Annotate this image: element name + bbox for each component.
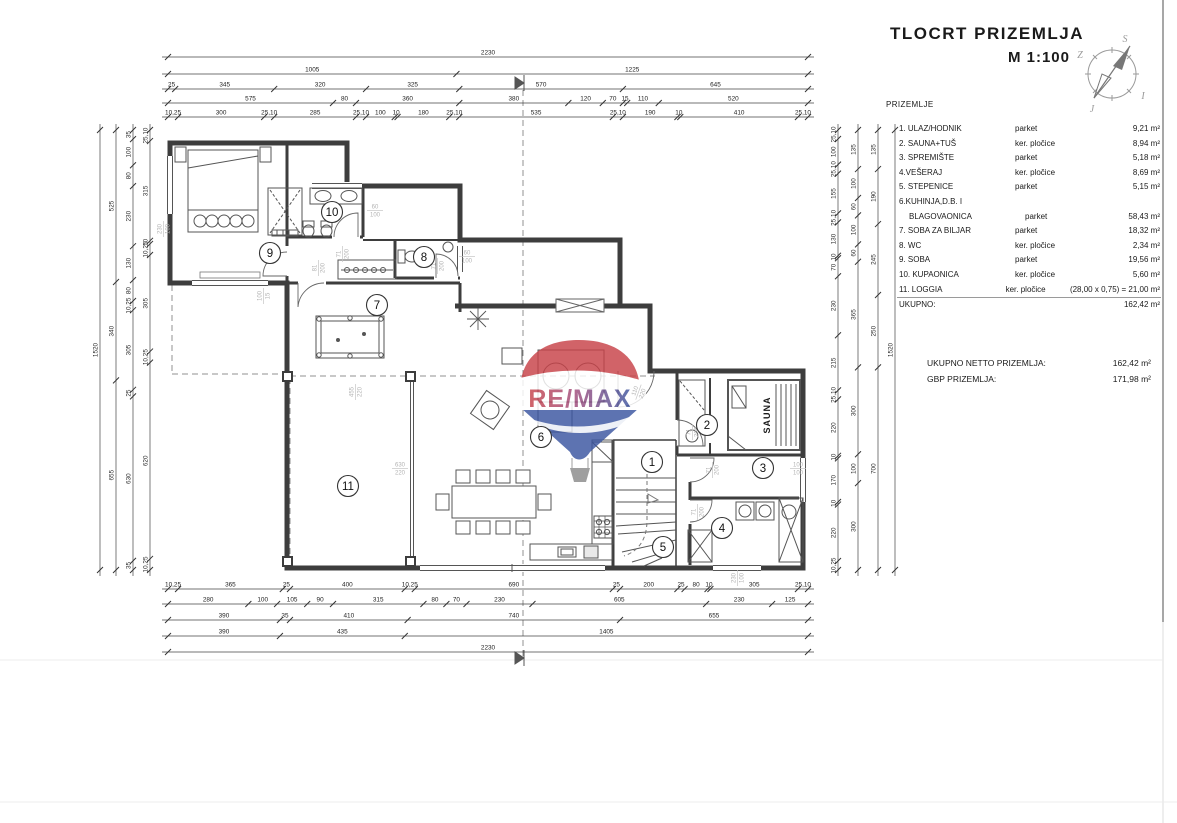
svg-text:100: 100 bbox=[257, 597, 268, 604]
svg-text:60: 60 bbox=[851, 203, 858, 211]
svg-text:120: 120 bbox=[580, 96, 591, 103]
svg-text:365: 365 bbox=[851, 309, 858, 320]
dim-chain: 3904351405 bbox=[162, 629, 814, 640]
svg-text:25: 25 bbox=[677, 582, 685, 589]
table-row: 1. ULAZ/HODNIKparket9,21 m² bbox=[899, 122, 1160, 137]
svg-text:10,25: 10,25 bbox=[143, 241, 150, 257]
svg-text:300: 300 bbox=[216, 110, 227, 117]
room-name: 1. ULAZ/HODNIK bbox=[899, 122, 1015, 137]
compass-south: J bbox=[1090, 104, 1095, 115]
svg-text:70: 70 bbox=[453, 597, 461, 604]
svg-text:345: 345 bbox=[219, 82, 230, 89]
glass-wall bbox=[411, 378, 414, 562]
table-row: 4.VEŠERAJker. pločice8,69 m² bbox=[899, 166, 1160, 181]
room-name: 2. SAUNA+TUŠ bbox=[899, 137, 1015, 152]
section-label: PRIZEMLJE bbox=[886, 100, 934, 109]
dim-chain: 135190245250700 bbox=[871, 124, 882, 576]
svg-text:80: 80 bbox=[341, 96, 349, 103]
svg-text:35: 35 bbox=[281, 613, 289, 620]
svg-text:80: 80 bbox=[126, 287, 133, 295]
svg-text:90: 90 bbox=[317, 597, 325, 604]
svg-text:435: 435 bbox=[337, 629, 348, 636]
dim-chain: 575803603801207015110520 bbox=[162, 96, 814, 107]
bed bbox=[175, 147, 271, 232]
svg-text:135: 135 bbox=[851, 144, 858, 155]
svg-text:25: 25 bbox=[283, 582, 291, 589]
svg-text:200: 200 bbox=[440, 260, 446, 271]
svg-text:380: 380 bbox=[508, 96, 519, 103]
svg-text:35: 35 bbox=[126, 561, 133, 569]
bathroom-fixtures bbox=[268, 188, 362, 237]
svg-text:305: 305 bbox=[126, 344, 133, 355]
dim-chain: 25345320325570645 bbox=[162, 82, 814, 93]
svg-text:655: 655 bbox=[709, 613, 720, 620]
svg-text:280: 280 bbox=[203, 597, 214, 604]
table-row: 6.KUHINJA,D.B. I bbox=[899, 195, 1160, 210]
table-row: 7. SOBA ZA BILJARparket18,32 m² bbox=[899, 224, 1160, 239]
svg-text:25: 25 bbox=[613, 582, 621, 589]
room-marker-3: 3 bbox=[753, 458, 774, 479]
room-area: 19,56 m² bbox=[1085, 253, 1160, 268]
svg-text:100: 100 bbox=[166, 223, 172, 234]
svg-text:100: 100 bbox=[851, 178, 858, 189]
balloon-basket bbox=[570, 468, 590, 482]
svg-text:1005: 1005 bbox=[305, 67, 320, 74]
svg-text:10: 10 bbox=[393, 110, 401, 117]
room-area: 5,60 m² bbox=[1085, 268, 1160, 283]
room-marker-9: 9 bbox=[260, 243, 281, 264]
svg-text:130: 130 bbox=[126, 257, 133, 268]
dim-chain: 10,253652540010,256902520025801030525,10 bbox=[162, 582, 814, 593]
svg-text:100: 100 bbox=[793, 471, 804, 477]
svg-text:5: 5 bbox=[660, 542, 666, 554]
svg-text:71: 71 bbox=[337, 250, 343, 257]
room-area: 2,34 m² bbox=[1085, 239, 1160, 254]
svg-text:25,10: 25,10 bbox=[446, 110, 462, 117]
svg-text:100: 100 bbox=[851, 463, 858, 474]
gbp-row: GBP PRIZEMLJA: 171,98 m² bbox=[927, 374, 1151, 384]
svg-text:315: 315 bbox=[373, 597, 384, 604]
svg-text:80: 80 bbox=[693, 582, 701, 589]
dim-chain: 280100105903158070230605230125 bbox=[162, 597, 814, 608]
room-area: 18,32 m² bbox=[1085, 224, 1160, 239]
svg-text:10,25: 10,25 bbox=[126, 297, 133, 313]
room-material bbox=[1015, 195, 1085, 210]
drawing-title: TLOCRT PRIZEMLJA bbox=[890, 24, 1070, 44]
dim-chain: 25,103151010,2530510,2562010,25 bbox=[143, 124, 154, 576]
svg-text:10: 10 bbox=[326, 207, 339, 219]
dim-chain: 39035410740655 bbox=[162, 613, 814, 624]
svg-text:305: 305 bbox=[749, 582, 760, 589]
room-marker-8: 8 bbox=[414, 247, 435, 268]
svg-text:410: 410 bbox=[734, 110, 745, 117]
svg-text:200: 200 bbox=[643, 582, 654, 589]
room-area: 5,18 m² bbox=[1085, 151, 1160, 166]
svg-text:525: 525 bbox=[109, 200, 116, 211]
dim-chain: 25,1010025,1015525,10130107023021525,102… bbox=[831, 124, 842, 576]
room-marker-11: 11 bbox=[338, 476, 359, 497]
opening-label: 455220 bbox=[350, 384, 364, 400]
svg-text:10,25: 10,25 bbox=[143, 349, 150, 365]
svg-text:630: 630 bbox=[126, 473, 133, 484]
svg-text:71: 71 bbox=[707, 466, 713, 473]
opening-label: 230100 bbox=[732, 570, 746, 586]
svg-text:390: 390 bbox=[219, 629, 230, 636]
svg-text:25,10: 25,10 bbox=[795, 582, 811, 589]
room-marker-6: 6 bbox=[531, 427, 552, 448]
svg-text:25,10: 25,10 bbox=[353, 110, 369, 117]
svg-text:71: 71 bbox=[692, 508, 698, 515]
svg-text:100: 100 bbox=[375, 110, 386, 117]
svg-text:575: 575 bbox=[245, 96, 256, 103]
svg-text:410: 410 bbox=[343, 613, 354, 620]
room-material: parket bbox=[1015, 122, 1085, 137]
svg-text:190: 190 bbox=[871, 191, 878, 202]
table-rule bbox=[897, 297, 1161, 298]
svg-text:1520: 1520 bbox=[93, 342, 100, 357]
svg-text:81: 81 bbox=[313, 264, 319, 271]
svg-text:8: 8 bbox=[421, 252, 427, 264]
svg-text:100: 100 bbox=[831, 146, 838, 157]
billiard-table bbox=[316, 316, 384, 358]
remax-watermark: RE/MAX bbox=[514, 340, 646, 482]
svg-text:60: 60 bbox=[464, 251, 471, 257]
svg-text:535: 535 bbox=[531, 110, 542, 117]
room-material: parket bbox=[1015, 224, 1085, 239]
svg-text:155: 155 bbox=[831, 188, 838, 199]
opening-label: 81200 bbox=[313, 260, 327, 276]
room-material: parket bbox=[1015, 180, 1085, 195]
room-material: parket bbox=[1015, 151, 1085, 166]
svg-text:390: 390 bbox=[219, 613, 230, 620]
room-area: 8,69 m² bbox=[1085, 166, 1160, 181]
total-row: UKUPNO: 162,42 m² bbox=[899, 300, 1160, 309]
svg-text:100: 100 bbox=[740, 572, 746, 583]
svg-text:80: 80 bbox=[126, 172, 133, 180]
svg-text:220: 220 bbox=[831, 422, 838, 433]
svg-text:100: 100 bbox=[851, 224, 858, 235]
svg-text:130: 130 bbox=[831, 233, 838, 244]
svg-text:630: 630 bbox=[395, 463, 406, 469]
total-label: UKUPNO: bbox=[899, 300, 1015, 309]
svg-text:340: 340 bbox=[109, 325, 116, 336]
dim-chain: 10051225 bbox=[162, 67, 814, 78]
net-total-row: UKUPNO NETTO PRIZEMLJA: 162,42 m² bbox=[927, 358, 1151, 368]
compass-west: Z bbox=[1077, 50, 1083, 61]
room-name: 6.KUHINJA,D.B. I bbox=[899, 195, 1015, 210]
opening-label: 10015 bbox=[258, 288, 272, 304]
svg-text:2: 2 bbox=[704, 420, 710, 432]
gbp-label: GBP PRIZEMLJA: bbox=[927, 374, 996, 384]
svg-text:25,10: 25,10 bbox=[261, 110, 277, 117]
svg-text:1405: 1405 bbox=[599, 629, 614, 636]
svg-text:605: 605 bbox=[614, 597, 625, 604]
room-marker-4: 4 bbox=[712, 518, 733, 539]
room-schedule-table: 1. ULAZ/HODNIKparket9,21 m²2. SAUNA+TUŠk… bbox=[899, 122, 1160, 297]
room-area: 58,43 m² bbox=[1095, 210, 1160, 225]
svg-text:245: 245 bbox=[871, 254, 878, 265]
room-marker-5: 5 bbox=[653, 537, 674, 558]
svg-text:7: 7 bbox=[374, 300, 380, 312]
table-row: 8. WCker. pločice2,34 m² bbox=[899, 239, 1160, 254]
svg-text:645: 645 bbox=[710, 82, 721, 89]
svg-text:200: 200 bbox=[715, 464, 721, 475]
svg-text:9: 9 bbox=[267, 248, 273, 260]
svg-text:100: 100 bbox=[462, 259, 473, 265]
svg-text:200: 200 bbox=[321, 262, 327, 273]
total-value: 162,42 m² bbox=[1085, 300, 1160, 309]
room-name: 7. SOBA ZA BILJAR bbox=[899, 224, 1015, 239]
svg-text:570: 570 bbox=[536, 82, 547, 89]
table-row: 5. STEPENICEparket5,15 m² bbox=[899, 180, 1160, 195]
svg-text:740: 740 bbox=[508, 613, 519, 620]
svg-text:2230: 2230 bbox=[481, 645, 496, 652]
svg-text:15: 15 bbox=[621, 96, 629, 103]
svg-text:1520: 1520 bbox=[888, 342, 895, 357]
svg-text:6: 6 bbox=[538, 432, 544, 444]
svg-text:10: 10 bbox=[705, 582, 713, 589]
svg-text:10,25: 10,25 bbox=[402, 582, 418, 589]
room-name: 11. LOGGIA bbox=[899, 283, 1006, 298]
svg-text:3: 3 bbox=[760, 463, 766, 475]
svg-text:15: 15 bbox=[266, 292, 272, 299]
opening-label: 60100 bbox=[367, 205, 383, 219]
dim-chain: 2230 bbox=[162, 50, 814, 61]
opening-label: 71200 bbox=[692, 504, 706, 520]
svg-text:80: 80 bbox=[431, 597, 439, 604]
drawing-sheet: SAUNA RE/MAX 223010051225253453203255706… bbox=[0, 0, 1177, 823]
room-material: ker. pločice bbox=[1015, 166, 1085, 181]
dim-chain: 2230 bbox=[162, 645, 814, 656]
svg-text:320: 320 bbox=[315, 82, 326, 89]
svg-text:25,10: 25,10 bbox=[831, 386, 838, 402]
svg-text:360: 360 bbox=[402, 96, 413, 103]
room-material: ker. pločice bbox=[1015, 239, 1085, 254]
svg-text:70: 70 bbox=[831, 263, 838, 271]
table-row: 3. SPREMIŠTEparket5,18 m² bbox=[899, 151, 1160, 166]
svg-text:70: 70 bbox=[609, 96, 617, 103]
svg-text:11: 11 bbox=[342, 481, 354, 493]
sauna-label: SAUNA bbox=[762, 396, 772, 433]
table-row: BLAGOVAONICAparket58,43 m² bbox=[899, 210, 1160, 225]
dim-chain: 10,2530025,1028525,101001018025,1053525,… bbox=[162, 110, 814, 121]
svg-text:170: 170 bbox=[831, 474, 838, 485]
compass-rose: S Z I J bbox=[1077, 34, 1145, 115]
svg-text:25,10: 25,10 bbox=[831, 161, 838, 177]
svg-text:220: 220 bbox=[358, 386, 364, 397]
room-area bbox=[1085, 195, 1160, 210]
svg-text:105: 105 bbox=[287, 597, 298, 604]
compass-north: S bbox=[1123, 34, 1128, 45]
table-row: 11. LOGGIAker. pločice(28,00 x 0,75) = 2… bbox=[899, 283, 1160, 298]
svg-text:300: 300 bbox=[851, 405, 858, 416]
room-name: 5. STEPENICE bbox=[899, 180, 1015, 195]
svg-text:365: 365 bbox=[225, 582, 236, 589]
dim-chain: 1520 bbox=[888, 124, 899, 576]
svg-text:220: 220 bbox=[395, 471, 406, 477]
svg-text:25,10: 25,10 bbox=[143, 127, 150, 143]
svg-text:25,10: 25,10 bbox=[795, 110, 811, 117]
svg-text:180: 180 bbox=[418, 110, 429, 117]
svg-text:135: 135 bbox=[871, 144, 878, 155]
room-marker-2: 2 bbox=[697, 415, 718, 436]
dining-set bbox=[436, 470, 551, 534]
svg-text:190: 190 bbox=[645, 110, 656, 117]
svg-text:110: 110 bbox=[638, 96, 649, 103]
svg-text:520: 520 bbox=[728, 96, 739, 103]
svg-text:655: 655 bbox=[109, 469, 116, 480]
room-material: ker. pločice bbox=[1015, 137, 1085, 152]
svg-text:100: 100 bbox=[370, 213, 381, 219]
svg-text:25,10: 25,10 bbox=[831, 209, 838, 225]
room-material: ker. pločice bbox=[1015, 268, 1085, 283]
room-marker-1: 1 bbox=[642, 452, 663, 473]
columns bbox=[283, 372, 415, 566]
svg-text:25: 25 bbox=[168, 82, 176, 89]
svg-text:200: 200 bbox=[345, 248, 351, 259]
svg-text:1: 1 bbox=[649, 457, 655, 469]
room-name: 8. WC bbox=[899, 239, 1015, 254]
svg-text:25,10: 25,10 bbox=[610, 110, 626, 117]
drawing-scale: M 1:100 bbox=[955, 49, 1070, 66]
dim-chain: 525340655 bbox=[109, 124, 120, 576]
net-total-value: 162,42 m² bbox=[1113, 358, 1151, 368]
svg-text:60: 60 bbox=[851, 249, 858, 257]
svg-text:60: 60 bbox=[372, 205, 379, 211]
room-area: (28,00 x 0,75) = 21,00 m² bbox=[1070, 283, 1160, 298]
table-row: 9. SOBAparket19,56 m² bbox=[899, 253, 1160, 268]
svg-text:25: 25 bbox=[126, 389, 133, 397]
compass-east: I bbox=[1140, 91, 1145, 102]
svg-text:71: 71 bbox=[687, 428, 693, 435]
svg-text:315: 315 bbox=[143, 185, 150, 196]
svg-text:10,25: 10,25 bbox=[143, 556, 150, 572]
svg-text:230: 230 bbox=[126, 210, 133, 221]
svg-text:10: 10 bbox=[675, 110, 683, 117]
svg-text:250: 250 bbox=[871, 325, 878, 336]
svg-text:285: 285 bbox=[310, 110, 321, 117]
opening-label: 630220 bbox=[392, 463, 408, 477]
table-row: 10. KUPAONICAker. pločice5,60 m² bbox=[899, 268, 1160, 283]
svg-text:125: 125 bbox=[785, 597, 796, 604]
room-area: 9,21 m² bbox=[1085, 122, 1160, 137]
svg-text:100: 100 bbox=[793, 463, 804, 469]
svg-text:300: 300 bbox=[851, 521, 858, 532]
svg-text:325: 325 bbox=[407, 82, 418, 89]
table-row: 2. SAUNA+TUŠker. pločice8,94 m² bbox=[899, 137, 1160, 152]
svg-text:230: 230 bbox=[158, 223, 164, 234]
svg-text:25,10: 25,10 bbox=[831, 126, 838, 142]
svg-text:10,25: 10,25 bbox=[831, 557, 838, 573]
svg-text:230: 230 bbox=[732, 572, 738, 583]
room-area: 8,94 m² bbox=[1085, 137, 1160, 152]
svg-text:1225: 1225 bbox=[625, 67, 640, 74]
room-name: BLAGOVAONICA bbox=[899, 210, 1025, 225]
svg-text:220: 220 bbox=[831, 527, 838, 538]
svg-text:35: 35 bbox=[126, 131, 133, 139]
svg-text:100: 100 bbox=[258, 290, 264, 301]
dim-chain: 1351006010060365300100300 bbox=[851, 124, 862, 576]
svg-text:200: 200 bbox=[700, 506, 706, 517]
sauna-room bbox=[679, 380, 800, 450]
remax-text: RE/MAX bbox=[528, 385, 631, 413]
svg-text:700: 700 bbox=[871, 463, 878, 474]
svg-text:10: 10 bbox=[831, 253, 838, 261]
room-material: parket bbox=[1025, 210, 1095, 225]
svg-text:690: 690 bbox=[508, 582, 519, 589]
svg-text:100: 100 bbox=[126, 146, 133, 157]
net-total-label: UKUPNO NETTO PRIZEMLJA: bbox=[927, 358, 1046, 368]
svg-text:230: 230 bbox=[734, 597, 745, 604]
gbp-value: 171,98 m² bbox=[1113, 374, 1151, 384]
svg-text:10,25: 10,25 bbox=[165, 110, 181, 117]
dim-chain: 1520 bbox=[93, 124, 104, 576]
room-name: 4.VEŠERAJ bbox=[899, 166, 1015, 181]
room-material: parket bbox=[1015, 253, 1085, 268]
svg-text:10: 10 bbox=[831, 499, 838, 507]
svg-text:4: 4 bbox=[719, 523, 726, 535]
svg-text:10: 10 bbox=[831, 453, 838, 461]
room-name: 10. KUPAONICA bbox=[899, 268, 1015, 283]
svg-text:305: 305 bbox=[143, 298, 150, 309]
room-name: 3. SPREMIŠTE bbox=[899, 151, 1015, 166]
svg-text:230: 230 bbox=[494, 597, 505, 604]
room-marker-10: 10 bbox=[322, 202, 343, 223]
svg-text:2230: 2230 bbox=[481, 50, 496, 57]
svg-text:400: 400 bbox=[342, 582, 353, 589]
room-area: 5,15 m² bbox=[1085, 180, 1160, 195]
wardrobe bbox=[338, 260, 396, 279]
svg-text:455: 455 bbox=[350, 386, 356, 397]
svg-text:230: 230 bbox=[831, 300, 838, 311]
dim-chain: 35100802301308010,253052563035 bbox=[126, 124, 137, 576]
svg-text:620: 620 bbox=[143, 455, 150, 466]
room-material: ker. pločice bbox=[1006, 283, 1070, 298]
svg-text:215: 215 bbox=[831, 357, 838, 368]
svg-text:10,25: 10,25 bbox=[165, 582, 181, 589]
room-marker-7: 7 bbox=[367, 295, 388, 316]
room-name: 9. SOBA bbox=[899, 253, 1015, 268]
